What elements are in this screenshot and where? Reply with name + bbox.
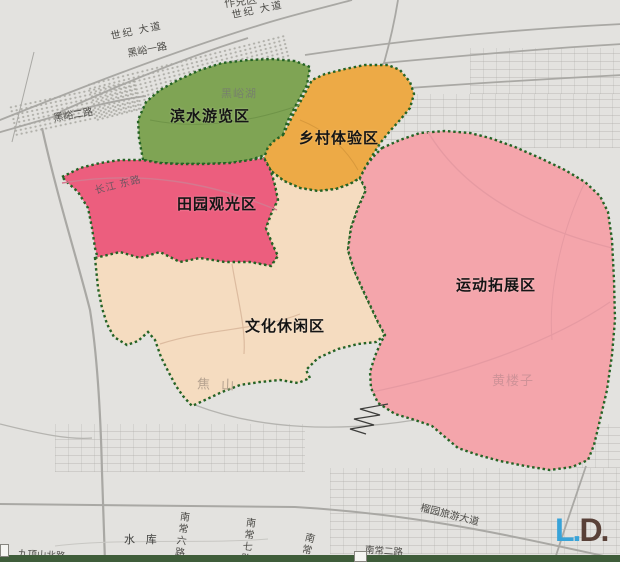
zoning-map-canvas: 滨水游览区 乡村体验区 田园观光区 文化休闲区 运动拓展区 世纪 大道 世纪 大…	[0, 0, 620, 562]
road-southwest-minor	[0, 424, 92, 438]
stream-zigzag	[350, 404, 388, 434]
zone-label-waterfront: 滨水游览区	[170, 105, 250, 126]
map-frame-square	[354, 551, 367, 562]
logo-part-d: D.	[579, 512, 607, 548]
zone-label-sports-expansion: 运动拓展区	[456, 274, 536, 295]
road-minor	[12, 52, 34, 142]
zone-label-rural-experience: 乡村体验区	[299, 127, 379, 148]
zone-label-pastoral-sightseeing: 田园观光区	[177, 193, 257, 214]
place-label-reservoir: 水 库	[124, 531, 161, 547]
road-north	[384, 0, 398, 63]
logo-part-l: L.	[555, 512, 579, 548]
logo: L.D.	[555, 512, 607, 549]
map-frame-square	[0, 544, 9, 557]
zone-shape-sports-expansion	[348, 131, 615, 470]
zones-layer	[62, 59, 615, 470]
road-northeast-2	[384, 44, 620, 63]
place-label-jiao-mountain: 焦 山	[197, 373, 239, 393]
contour-line	[55, 539, 268, 546]
place-label-heiyu-lake: 黑峪湖	[221, 85, 257, 101]
road-south-minor	[195, 405, 415, 427]
map-bottom-frame-bar	[0, 555, 620, 562]
place-label-huanglouzi: 黄楼子	[492, 370, 534, 389]
road-northeast-1	[305, 24, 620, 55]
zone-label-cultural-leisure: 文化休闲区	[245, 315, 325, 336]
